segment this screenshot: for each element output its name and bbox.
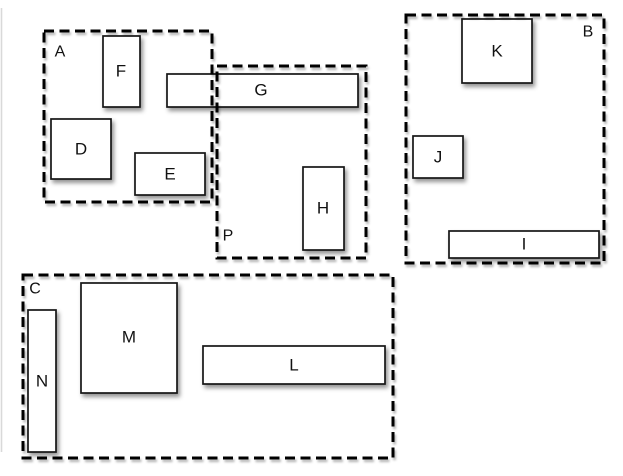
box-g-label: G — [254, 81, 267, 100]
diagram-canvas: A B C P F D E G H K J I M N L — [0, 0, 623, 476]
box-f-label: F — [116, 62, 126, 81]
container-c-label: C — [29, 281, 41, 298]
box-j-label: J — [434, 148, 443, 167]
box-e-label: E — [164, 165, 175, 184]
container-p-label: P — [223, 228, 234, 245]
container-b-label: B — [583, 24, 594, 41]
box-i-label: I — [522, 235, 527, 254]
box-k-label: K — [491, 42, 503, 61]
box-l-label: L — [289, 356, 298, 375]
box-n-label: N — [36, 372, 48, 391]
container-a-label: A — [55, 44, 66, 61]
diagram-svg: A B C P F D E G H K J I M N L — [0, 0, 623, 476]
box-d-label: D — [75, 140, 87, 159]
box-h-label: H — [317, 199, 329, 218]
box-m-label: M — [122, 328, 136, 347]
